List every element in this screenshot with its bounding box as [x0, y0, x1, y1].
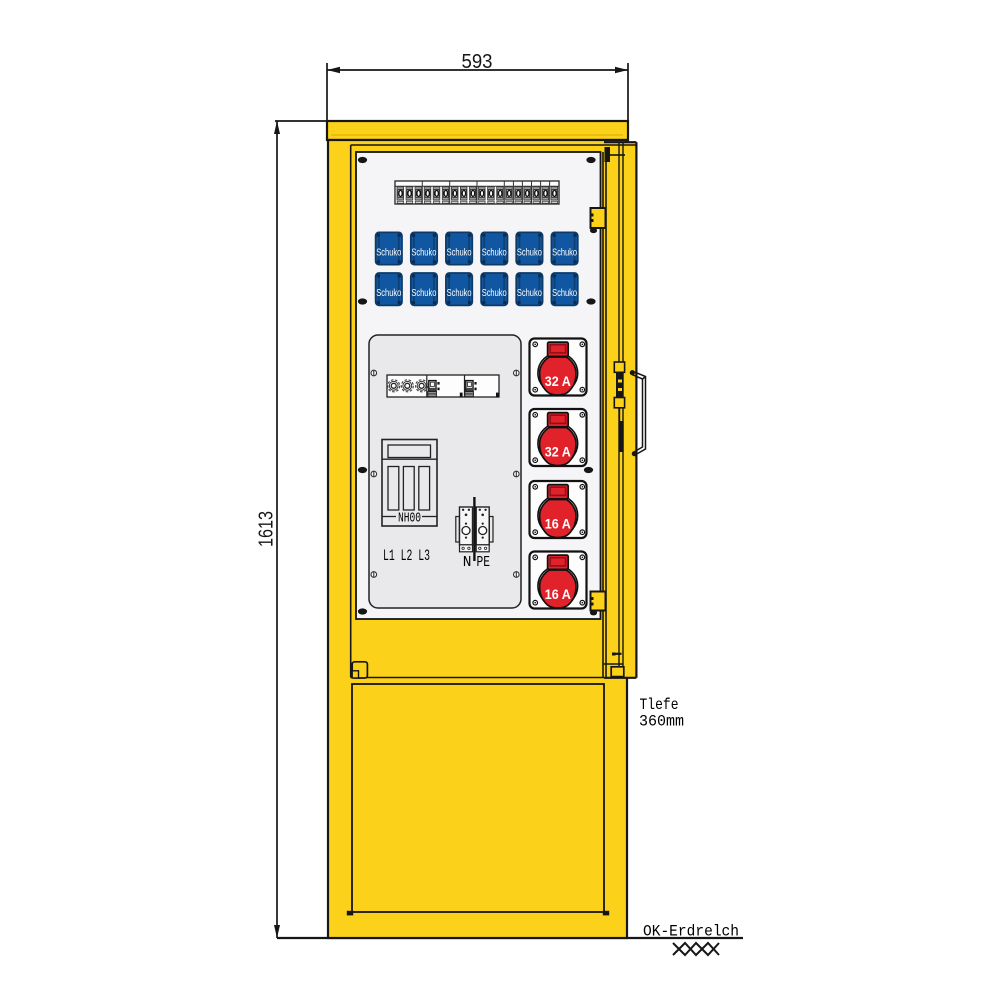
svg-text:Schuko: Schuko	[376, 288, 401, 299]
svg-text:1613: 1613	[255, 511, 278, 547]
svg-text:Schuko: Schuko	[552, 247, 577, 258]
svg-text:OK-Erdrelch: OK-Erdrelch	[643, 923, 739, 941]
svg-text:32 A: 32 A	[545, 374, 571, 389]
svg-text:NH00: NH00	[398, 511, 421, 527]
svg-text:Schuko: Schuko	[517, 247, 542, 258]
svg-text:L1 L2 L3: L1 L2 L3	[383, 547, 430, 565]
svg-text:Schuko: Schuko	[447, 247, 472, 258]
svg-text:360mm: 360mm	[639, 713, 684, 731]
svg-text:Schuko: Schuko	[411, 247, 436, 258]
svg-text:Schuko: Schuko	[411, 288, 436, 299]
svg-text:Schuko: Schuko	[482, 288, 507, 299]
svg-text:16 A: 16 A	[545, 587, 571, 602]
svg-text:N: N	[463, 555, 472, 571]
svg-text:16 A: 16 A	[545, 517, 571, 532]
svg-text:593: 593	[462, 50, 493, 73]
svg-text:Schuko: Schuko	[447, 288, 472, 299]
svg-text:Schuko: Schuko	[517, 288, 542, 299]
svg-text:Schuko: Schuko	[552, 288, 577, 299]
svg-text:32 A: 32 A	[545, 445, 571, 460]
svg-text:Schuko: Schuko	[376, 247, 401, 258]
svg-text:Schuko: Schuko	[482, 247, 507, 258]
svg-text:PE: PE	[477, 555, 491, 571]
svg-text:Tlefe: Tlefe	[640, 696, 679, 714]
